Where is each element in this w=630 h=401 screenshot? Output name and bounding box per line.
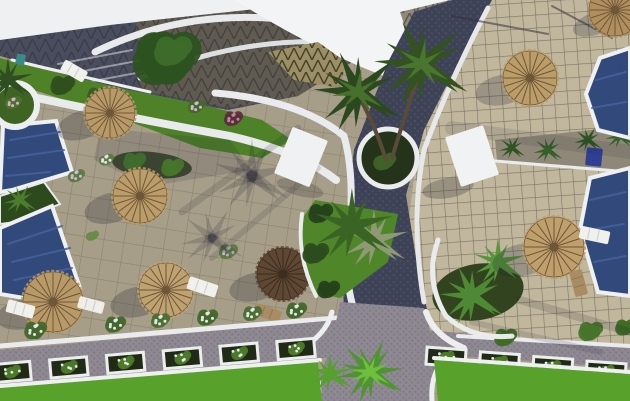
scene-canvas bbox=[0, 0, 630, 401]
resort-aerial-render bbox=[0, 0, 630, 401]
umbrella-1 bbox=[84, 87, 136, 139]
